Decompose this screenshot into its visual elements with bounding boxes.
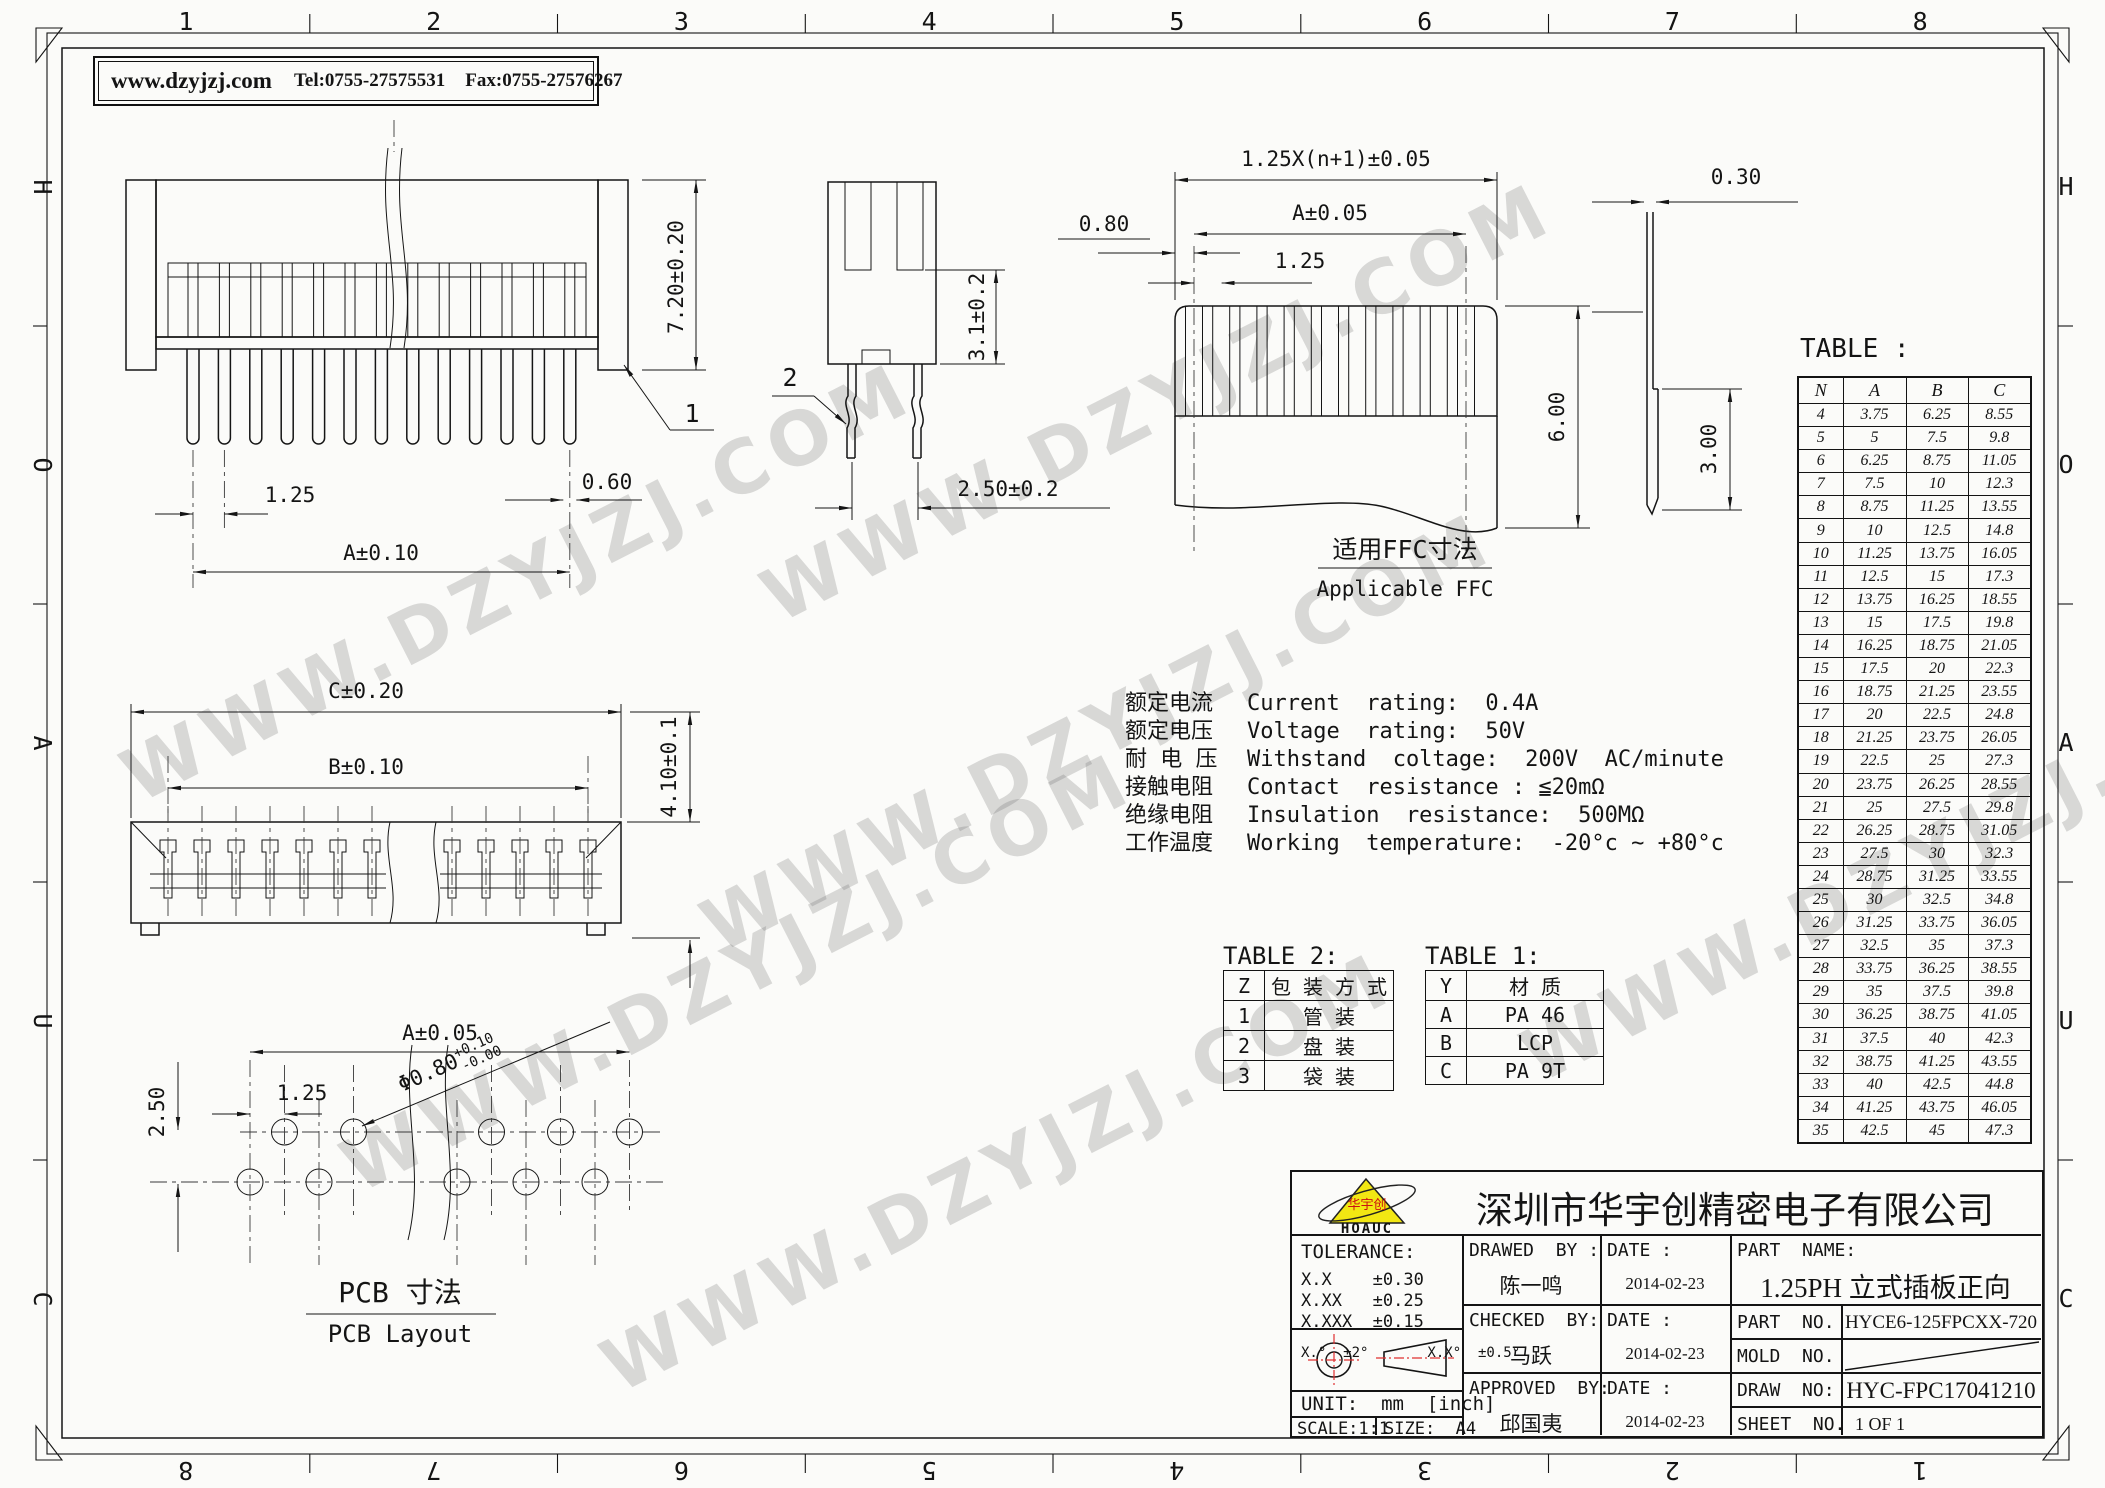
table-cell: 23.75 bbox=[1906, 727, 1968, 750]
dim-plan-b: B±0.10 bbox=[168, 755, 588, 818]
svg-text:3.1±0.2: 3.1±0.2 bbox=[965, 273, 989, 362]
ffc-view: 1.25X(n+1)±0.05 A±0.05 0.80 1.25 bbox=[1058, 147, 1590, 601]
tolerance-line: X.XXX ±0.15 bbox=[1301, 1312, 1424, 1332]
table-cell: 37.5 bbox=[1843, 1027, 1906, 1050]
table-cell: 10 bbox=[1798, 542, 1843, 565]
part-name-value: 1.25PH 立式插板正向 bbox=[1730, 1266, 2041, 1305]
svg-text:0.60: 0.60 bbox=[582, 470, 633, 494]
column-header: 包 装 方 式 bbox=[1265, 971, 1394, 1001]
border-label: C bbox=[28, 1291, 57, 1306]
table-row: 91012.514.8 bbox=[1798, 519, 2031, 542]
table-header-row: Y材 质 bbox=[1426, 971, 1604, 1001]
table-cell: 14 bbox=[1798, 634, 1843, 657]
table-cell: 19 bbox=[1798, 750, 1843, 773]
part-name-label: PART NAME: bbox=[1737, 1240, 1856, 1261]
table-cell: 32.5 bbox=[1906, 888, 1968, 911]
dim-front-pin-width: 0.60 bbox=[505, 470, 642, 500]
table-row: 172022.524.8 bbox=[1798, 704, 2031, 727]
spec-row: 接触电阻Contact resistance : ≦20mΩ bbox=[1125, 774, 1765, 802]
table-row: 2428.7531.2533.55 bbox=[1798, 865, 2031, 888]
checked-by-label: CHECKED BY: bbox=[1469, 1310, 1599, 1331]
table-row: 66.258.7511.05 bbox=[1798, 450, 2031, 473]
table-cell: 1 bbox=[1224, 1001, 1265, 1031]
table-cell: 10 bbox=[1843, 519, 1906, 542]
border-label: O bbox=[28, 457, 57, 472]
svg-text:PCB Layout: PCB Layout bbox=[328, 1320, 473, 1348]
table-cell: 盘 装 bbox=[1265, 1031, 1394, 1061]
table-row: BLCP bbox=[1426, 1029, 1604, 1057]
table-cell: 13 bbox=[1798, 611, 1843, 634]
table-cell: 27.5 bbox=[1843, 842, 1906, 865]
table-cell: 20 bbox=[1843, 704, 1906, 727]
mold-no-diagonal bbox=[1843, 1340, 2041, 1372]
table-cell: 12.5 bbox=[1906, 519, 1968, 542]
table-cell: 2 bbox=[1224, 1031, 1265, 1061]
table-cell: 30 bbox=[1798, 1004, 1843, 1027]
table-row: 3238.7541.2543.55 bbox=[1798, 1050, 2031, 1073]
tolerance-line: X.XX ±0.25 bbox=[1301, 1291, 1424, 1311]
table-cell: 22.5 bbox=[1906, 704, 1968, 727]
dim-side-leg: 2.50±0.2 bbox=[815, 462, 1110, 520]
border-label: 7 bbox=[426, 1456, 441, 1485]
table-row: 2226.2528.7531.05 bbox=[1798, 819, 2031, 842]
table-cell: 26.25 bbox=[1843, 819, 1906, 842]
table-row: 3137.54042.3 bbox=[1798, 1027, 2031, 1050]
table-cell: 42.5 bbox=[1906, 1073, 1968, 1096]
table-cell: 36.25 bbox=[1843, 1004, 1906, 1027]
scale-label: SCALE:1:1 bbox=[1297, 1419, 1389, 1439]
border-label: H bbox=[2058, 172, 2073, 201]
table-cell: 16 bbox=[1798, 681, 1843, 704]
table-cell: 47.3 bbox=[1968, 1119, 2031, 1143]
table-cell: 18.75 bbox=[1843, 681, 1906, 704]
dim-ffc-stub: 3.00 bbox=[1662, 389, 1742, 510]
table-cell: 42.5 bbox=[1843, 1119, 1906, 1143]
dim-pcb-span: A±0.05 bbox=[250, 1021, 630, 1052]
table-cell: 14.8 bbox=[1968, 519, 2031, 542]
table-cell: 41.25 bbox=[1906, 1050, 1968, 1073]
border-label: 7 bbox=[1665, 7, 1680, 36]
table-cell: A bbox=[1426, 1001, 1467, 1029]
table-cell: 26.25 bbox=[1906, 773, 1968, 796]
svg-text:Applicable FFC: Applicable FFC bbox=[1316, 577, 1493, 601]
table-cell: 18.55 bbox=[1968, 588, 2031, 611]
table-cell: 30 bbox=[1843, 888, 1906, 911]
table-cell: 30 bbox=[1906, 842, 1968, 865]
border-label: 1 bbox=[1913, 1456, 1928, 1485]
table-cell: 28.55 bbox=[1968, 773, 2031, 796]
checked-date: 2014-02-23 bbox=[1600, 1344, 1730, 1364]
table-cell: 35 bbox=[1906, 935, 1968, 958]
sheet-no-value: 1 OF 1 bbox=[1855, 1414, 1905, 1435]
table-row: 2023.7526.2528.55 bbox=[1798, 773, 2031, 796]
approved-by-label: APPROVED BY: bbox=[1469, 1378, 1610, 1399]
dim-ffc-margin: 0.80 bbox=[1058, 212, 1240, 253]
table-row: 2833.7536.2538.55 bbox=[1798, 958, 2031, 981]
tolerance-title: TOLERANCE: bbox=[1301, 1241, 1415, 1263]
drawn-date-label: DATE : bbox=[1607, 1240, 1672, 1261]
table-cell: 18.75 bbox=[1906, 634, 1968, 657]
table-cell: 10 bbox=[1906, 473, 1968, 496]
border-label: 6 bbox=[674, 1456, 689, 1485]
table-row: 2327.53032.3 bbox=[1798, 842, 2031, 865]
table-cell: 25 bbox=[1906, 750, 1968, 773]
table-cell: 24 bbox=[1798, 865, 1843, 888]
spec-row: 耐 电 压Withstand coltage: 200V AC/minute bbox=[1125, 746, 1765, 774]
table-cell: 32.3 bbox=[1968, 842, 2031, 865]
table-cell: 20 bbox=[1906, 658, 1968, 681]
table-cell: 13.75 bbox=[1843, 588, 1906, 611]
table-cell: 6 bbox=[1798, 450, 1843, 473]
part-no-label: PART NO. bbox=[1737, 1312, 1835, 1333]
dim-side-depth: 3.1±0.2 bbox=[925, 270, 1005, 364]
table-cell: C bbox=[1426, 1057, 1467, 1085]
dim-pcb-hole: Φ0.80+0.10-0.00 bbox=[362, 1022, 610, 1126]
table-row: 1618.7521.2523.55 bbox=[1798, 681, 2031, 704]
table-cell: 8.75 bbox=[1906, 450, 1968, 473]
table-cell: 22.5 bbox=[1843, 750, 1906, 773]
table-header-row: Z包 装 方 式 bbox=[1224, 971, 1394, 1001]
table-cell: 23 bbox=[1798, 842, 1843, 865]
border-label: U bbox=[28, 1013, 57, 1028]
table-row: 253032.534.8 bbox=[1798, 888, 2031, 911]
dimension-table-title: TABLE : bbox=[1800, 334, 1910, 364]
mold-no-label: MOLD NO. bbox=[1737, 1346, 1835, 1367]
table-cell: 21 bbox=[1798, 796, 1843, 819]
sheet-no-label: SHEET NO. bbox=[1737, 1414, 1845, 1435]
table-cell: 27.3 bbox=[1968, 750, 2031, 773]
table-cell: 17.5 bbox=[1906, 611, 1968, 634]
table-cell: 28 bbox=[1798, 958, 1843, 981]
table-cell: 7.5 bbox=[1906, 427, 1968, 450]
table-cell: 41.25 bbox=[1843, 1096, 1906, 1119]
table-cell: 45 bbox=[1906, 1119, 1968, 1143]
table-cell: 15 bbox=[1843, 611, 1906, 634]
drawn-date: 2014-02-23 bbox=[1600, 1274, 1730, 1294]
table-cell: 38.75 bbox=[1843, 1050, 1906, 1073]
svg-text:C±0.20: C±0.20 bbox=[328, 679, 404, 703]
table-row: 2631.2533.7536.05 bbox=[1798, 912, 2031, 935]
table-row: 1922.52527.3 bbox=[1798, 750, 2031, 773]
border-label: 6 bbox=[1417, 7, 1432, 36]
draw-no-label: DRAW NO: bbox=[1737, 1380, 1835, 1401]
table-cell: 28.75 bbox=[1906, 819, 1968, 842]
ffc-side-view: 0.30 3.00 bbox=[1592, 165, 1798, 514]
spec-row: 工作温度Working temperature: -20°c ~ +80°c bbox=[1125, 830, 1765, 858]
column-header: A bbox=[1843, 377, 1906, 404]
border-label: 4 bbox=[922, 7, 937, 36]
table-cell: PA 46 bbox=[1467, 1001, 1604, 1029]
approved-by-name: 邱国夷 bbox=[1462, 1408, 1600, 1438]
table-cell: 13.55 bbox=[1968, 496, 2031, 519]
table-row: 1112.51517.3 bbox=[1798, 565, 2031, 588]
table-cell: 31 bbox=[1798, 1027, 1843, 1050]
table-cell: 43.55 bbox=[1968, 1050, 2031, 1073]
table-row: 557.59.8 bbox=[1798, 427, 2031, 450]
material-table-title: TABLE 1: bbox=[1425, 942, 1541, 970]
dim-plan-c: C±0.20 bbox=[131, 679, 621, 818]
border-label: 8 bbox=[1913, 7, 1928, 36]
table-cell: 40 bbox=[1906, 1027, 1968, 1050]
tolerance-line: X.X ±0.30 bbox=[1301, 1270, 1424, 1290]
table-cell: 18 bbox=[1798, 727, 1843, 750]
table-row: 1517.52022.3 bbox=[1798, 658, 2031, 681]
table-cell: 34.8 bbox=[1968, 888, 2031, 911]
dim-ffc-span: A±0.05 bbox=[1194, 201, 1466, 234]
table-cell: 15 bbox=[1906, 565, 1968, 588]
table-cell: 16.25 bbox=[1843, 634, 1906, 657]
table-row: 3542.54547.3 bbox=[1798, 1119, 2031, 1143]
table-cell: 16.25 bbox=[1906, 588, 1968, 611]
table-cell: 9 bbox=[1798, 519, 1843, 542]
side-view: 2 3.1±0.2 2.50±0.2 bbox=[772, 182, 1110, 520]
table-cell: 袋 装 bbox=[1265, 1061, 1394, 1091]
logo-zh-text: 华宇创 bbox=[1347, 1198, 1386, 1213]
plan-view: C±0.20 B±0.10 4.10±0.1 bbox=[131, 679, 700, 988]
svg-text:1.25: 1.25 bbox=[277, 1081, 328, 1105]
dim-ffc-height: 6.00 bbox=[1505, 306, 1590, 528]
dimension-table: NABC43.756.258.55557.59.866.258.7511.057… bbox=[1797, 376, 2032, 1144]
table-cell: 41.05 bbox=[1968, 1004, 2031, 1027]
table-row: 293537.539.8 bbox=[1798, 981, 2031, 1004]
table-cell: B bbox=[1426, 1029, 1467, 1057]
svg-text:4.10±0.1: 4.10±0.1 bbox=[657, 716, 681, 817]
table-header-row: NABC bbox=[1798, 377, 2031, 404]
svg-text:2.50±0.2: 2.50±0.2 bbox=[957, 477, 1058, 501]
border-label: 4 bbox=[1169, 1456, 1184, 1485]
table-cell: LCP bbox=[1467, 1029, 1604, 1057]
spec-row: 额定电压Voltage rating: 50V bbox=[1125, 718, 1765, 746]
svg-text:B±0.10: B±0.10 bbox=[328, 755, 404, 779]
table-cell: 31.05 bbox=[1968, 819, 2031, 842]
ffc-caption: 适用FFC寸法 Applicable FFC bbox=[1316, 535, 1493, 601]
table-cell: 43.75 bbox=[1906, 1096, 1968, 1119]
svg-text:PCB 寸法: PCB 寸法 bbox=[338, 1276, 461, 1309]
table-row: 2732.53537.3 bbox=[1798, 935, 2031, 958]
callout-1: 1 bbox=[624, 365, 714, 430]
approved-date: 2014-02-23 bbox=[1600, 1412, 1730, 1432]
table-cell: 26 bbox=[1798, 912, 1843, 935]
table-row: 1821.2523.7526.05 bbox=[1798, 727, 2031, 750]
table-row: 334042.544.8 bbox=[1798, 1073, 2031, 1096]
table-cell: 39.8 bbox=[1968, 981, 2031, 1004]
border-label: A bbox=[28, 735, 57, 750]
table-cell: 16.05 bbox=[1968, 542, 2031, 565]
pcb-caption: PCB 寸法 PCB Layout bbox=[306, 1276, 496, 1348]
dim-front-pitch: 1.25 bbox=[155, 450, 570, 588]
table-cell: 33 bbox=[1798, 1073, 1843, 1096]
table-cell: 38.55 bbox=[1968, 958, 2031, 981]
table-cell: 28.75 bbox=[1843, 865, 1906, 888]
tel: Tel:0755-27575531 bbox=[294, 70, 445, 92]
table-row: 1管 装 bbox=[1224, 1001, 1394, 1031]
table-cell: 42.3 bbox=[1968, 1027, 2031, 1050]
header-contact-box: www.dzyjzj.com Tel:0755-27575531 Fax:075… bbox=[93, 56, 599, 106]
border-label: U bbox=[2058, 1006, 2073, 1035]
svg-text:1.25X(n+1)±0.05: 1.25X(n+1)±0.05 bbox=[1241, 147, 1431, 171]
spec-row: 额定电流Current rating: 0.4A bbox=[1125, 690, 1765, 718]
table-cell: 20 bbox=[1798, 773, 1843, 796]
svg-text:A±0.10: A±0.10 bbox=[343, 541, 419, 565]
table-cell: 17.3 bbox=[1968, 565, 2031, 588]
table-cell: 35 bbox=[1843, 981, 1906, 1004]
column-header: Y bbox=[1426, 971, 1467, 1001]
table-cell: 12.5 bbox=[1843, 565, 1906, 588]
border-label: H bbox=[28, 179, 57, 194]
table-row: 2盘 装 bbox=[1224, 1031, 1394, 1061]
table-cell: 23.75 bbox=[1843, 773, 1906, 796]
table-cell: 31.25 bbox=[1906, 865, 1968, 888]
table-cell: 17 bbox=[1798, 704, 1843, 727]
table-cell: 7.5 bbox=[1843, 473, 1906, 496]
dim-plan-depth: 4.10±0.1 bbox=[627, 712, 700, 988]
border-label: 5 bbox=[1169, 7, 1184, 36]
table-row: APA 46 bbox=[1426, 1001, 1604, 1029]
dim-front-span: A±0.10 bbox=[193, 541, 570, 572]
table-row: CPA 9T bbox=[1426, 1057, 1604, 1085]
border-label: 2 bbox=[1665, 1456, 1680, 1485]
table-row: 43.756.258.55 bbox=[1798, 404, 2031, 427]
table-cell: 21.05 bbox=[1968, 634, 2031, 657]
table-cell: 管 装 bbox=[1265, 1001, 1394, 1031]
table-cell: 22 bbox=[1798, 819, 1843, 842]
table-cell: 33.75 bbox=[1906, 912, 1968, 935]
checked-by-name: 马跃 bbox=[1462, 1340, 1600, 1370]
projection-symbol bbox=[1302, 1332, 1457, 1388]
dim-ffc-thickness: 0.30 bbox=[1592, 165, 1798, 202]
company-logo: 华宇创 HOAUC bbox=[1306, 1175, 1428, 1233]
column-header: Z bbox=[1224, 971, 1265, 1001]
table-cell: 17.5 bbox=[1843, 658, 1906, 681]
table-cell: 3.75 bbox=[1843, 404, 1906, 427]
table-row: 131517.519.8 bbox=[1798, 611, 2031, 634]
table-cell: 27 bbox=[1798, 935, 1843, 958]
part-no-value: HYCE6-125FPCXX-720 bbox=[1841, 1312, 2041, 1334]
table-cell: 27.5 bbox=[1906, 796, 1968, 819]
border-label: 3 bbox=[1417, 1456, 1432, 1485]
table-cell: 23.55 bbox=[1968, 681, 2031, 704]
svg-text:1.25: 1.25 bbox=[265, 483, 316, 507]
packing-table-title: TABLE 2: bbox=[1223, 942, 1339, 970]
table-cell: 35 bbox=[1798, 1119, 1843, 1143]
table-row: 3袋 装 bbox=[1224, 1061, 1394, 1091]
packing-table: Z包 装 方 式1管 装2盘 装3袋 装 bbox=[1223, 970, 1394, 1091]
spec-row: 绝缘电阻Insulation resistance: 500MΩ bbox=[1125, 802, 1765, 830]
table-cell: 32 bbox=[1798, 1050, 1843, 1073]
table-cell: 34 bbox=[1798, 1096, 1843, 1119]
table-row: 1011.2513.7516.05 bbox=[1798, 542, 2031, 565]
table-cell: 13.75 bbox=[1906, 542, 1968, 565]
pcb-layout-view: A±0.05 1.25 2.50 Φ0.80+0.10-0.00 PCB 寸法 bbox=[145, 1021, 665, 1348]
table-cell: 25 bbox=[1843, 796, 1906, 819]
table-cell: 26.05 bbox=[1968, 727, 2031, 750]
column-header: B bbox=[1906, 377, 1968, 404]
website: www.dzyjzj.com bbox=[111, 68, 272, 94]
table-cell: 29 bbox=[1798, 981, 1843, 1004]
table-cell: 38.75 bbox=[1906, 1004, 1968, 1027]
table-cell: 12.3 bbox=[1968, 473, 2031, 496]
svg-text:2: 2 bbox=[782, 363, 797, 392]
dim-front-height: 7.20±0.20 bbox=[642, 180, 706, 370]
table-row: 3036.2538.7541.05 bbox=[1798, 1004, 2031, 1027]
table-cell: 11.25 bbox=[1843, 542, 1906, 565]
table-cell: 5 bbox=[1843, 427, 1906, 450]
fax: Fax:0755-27576267 bbox=[465, 70, 622, 92]
table-cell: 37.5 bbox=[1906, 981, 1968, 1004]
table-cell: 37.3 bbox=[1968, 935, 2031, 958]
table-cell: 19.8 bbox=[1968, 611, 2031, 634]
table-cell: 11.25 bbox=[1906, 496, 1968, 519]
drawn-by-label: DRAWED BY : bbox=[1469, 1240, 1599, 1261]
table-cell: 40 bbox=[1843, 1073, 1906, 1096]
material-table: Y材 质APA 46BLCPCPA 9T bbox=[1425, 970, 1604, 1085]
svg-text:2.50: 2.50 bbox=[145, 1087, 169, 1138]
border-label: 5 bbox=[922, 1456, 937, 1485]
table-cell: 6.25 bbox=[1843, 450, 1906, 473]
table-cell: 22.3 bbox=[1968, 658, 2031, 681]
table-row: 77.51012.3 bbox=[1798, 473, 2031, 496]
svg-text:A±0.05: A±0.05 bbox=[1292, 201, 1368, 225]
table-cell: 8.75 bbox=[1843, 496, 1906, 519]
table-cell: 8 bbox=[1798, 496, 1843, 519]
table-cell: 46.05 bbox=[1968, 1096, 2031, 1119]
dim-pcb-row: 2.50 bbox=[145, 1062, 178, 1252]
table-cell: 25 bbox=[1798, 888, 1843, 911]
table-cell: 4 bbox=[1798, 404, 1843, 427]
svg-text:1: 1 bbox=[684, 399, 699, 428]
title-block: 华宇创 HOAUC 深圳市华宇创精密电子有限公司 TOLERANCE: X.X … bbox=[1290, 1170, 2044, 1438]
dim-pcb-pitch: 1.25 bbox=[212, 1081, 327, 1114]
svg-text:7.20±0.20: 7.20±0.20 bbox=[664, 220, 688, 334]
table-row: 212527.529.8 bbox=[1798, 796, 2031, 819]
border-label: 3 bbox=[674, 7, 689, 36]
table-cell: 6.25 bbox=[1906, 404, 1968, 427]
border-label: O bbox=[2058, 450, 2073, 479]
table-cell: 29.8 bbox=[1968, 796, 2031, 819]
table-cell: 24.8 bbox=[1968, 704, 2031, 727]
table-cell: 9.8 bbox=[1968, 427, 2031, 450]
draw-no-value: HYC-FPC17041210 bbox=[1841, 1378, 2041, 1404]
table-cell: 44.8 bbox=[1968, 1073, 2031, 1096]
svg-text:0.30: 0.30 bbox=[1711, 165, 1762, 189]
table-cell: 21.25 bbox=[1843, 727, 1906, 750]
table-cell: 11.05 bbox=[1968, 450, 2031, 473]
column-header: C bbox=[1968, 377, 2031, 404]
column-header: 材 质 bbox=[1467, 971, 1604, 1001]
table-cell: 36.05 bbox=[1968, 912, 2031, 935]
front-view: 7.20±0.20 1.25 0.60 A±0.10 bbox=[126, 120, 714, 588]
table-cell: 3 bbox=[1224, 1061, 1265, 1091]
border-label: A bbox=[2058, 728, 2073, 757]
table-cell: 32.5 bbox=[1843, 935, 1906, 958]
table-cell: 36.25 bbox=[1906, 958, 1968, 981]
svg-text:3.00: 3.00 bbox=[1697, 424, 1721, 475]
table-cell: 7 bbox=[1798, 473, 1843, 496]
checked-date-label: DATE : bbox=[1607, 1310, 1672, 1331]
border-label: 2 bbox=[426, 7, 441, 36]
border-label: C bbox=[2058, 1284, 2073, 1313]
table-cell: 33.55 bbox=[1968, 865, 2031, 888]
svg-text:0.80: 0.80 bbox=[1079, 212, 1130, 236]
table-cell: 31.25 bbox=[1843, 912, 1906, 935]
column-header: N bbox=[1798, 377, 1843, 404]
drawn-by-name: 陈一鸣 bbox=[1462, 1270, 1600, 1300]
table-cell: 33.75 bbox=[1843, 958, 1906, 981]
table-cell: 8.55 bbox=[1968, 404, 2031, 427]
table-cell: 12 bbox=[1798, 588, 1843, 611]
table-row: 1213.7516.2518.55 bbox=[1798, 588, 2031, 611]
table-row: 88.7511.2513.55 bbox=[1798, 496, 2031, 519]
